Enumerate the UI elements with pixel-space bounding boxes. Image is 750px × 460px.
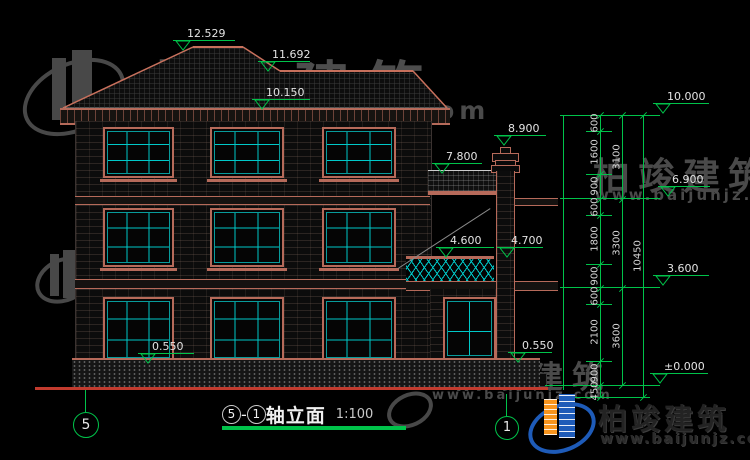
title-grid-start: 5 bbox=[222, 405, 241, 424]
elevation-marker-chimney: 8.900 bbox=[494, 122, 546, 136]
elevation-marker-sill-right: 0.550 bbox=[508, 339, 554, 353]
dim-segment: 900 bbox=[590, 176, 601, 195]
title-grid-end: 1 bbox=[247, 405, 266, 424]
elevation-marker-10000: 10.000 bbox=[653, 90, 709, 104]
grid-bubble-1: 1 bbox=[495, 416, 519, 440]
cad-elevation-drawing: 柏竣建筑 www.baijunjz.com 柏竣建筑 www.baijunjz.… bbox=[0, 0, 750, 460]
dim-segment: 1600 bbox=[590, 139, 601, 164]
dim-segment: 600 bbox=[590, 197, 601, 216]
ledge-6900 bbox=[514, 198, 558, 206]
elevation-marker-balcony: 4.600 bbox=[436, 234, 494, 248]
window-1f-right bbox=[322, 297, 396, 362]
logo-building-blue-icon bbox=[559, 394, 575, 438]
level-line bbox=[560, 287, 660, 288]
elevation-triangle-icon bbox=[438, 247, 454, 258]
dim-segment: 900 bbox=[590, 266, 601, 285]
elevation-triangle-icon bbox=[652, 373, 668, 384]
title-axis-text: 轴立面 bbox=[266, 405, 326, 427]
elevation-marker-eave: 10.150 bbox=[252, 86, 310, 100]
window-1f-center bbox=[210, 297, 284, 362]
elevation-triangle-icon bbox=[655, 103, 671, 114]
elevation-marker-ridge2: 11.692 bbox=[258, 48, 311, 62]
dim-floor-height: 3100 bbox=[612, 144, 623, 169]
elevation-triangle-icon bbox=[254, 99, 270, 110]
elevation-marker-6900: 6.900 bbox=[658, 173, 710, 187]
watermark-logo-bar bbox=[50, 254, 59, 296]
elevation-triangle-icon bbox=[660, 186, 676, 197]
elevation-triangle-icon bbox=[655, 275, 671, 286]
elevation-triangle-icon bbox=[260, 61, 276, 72]
window-2f-right bbox=[322, 208, 396, 267]
elevation-triangle-icon bbox=[496, 135, 512, 146]
grid-line-5 bbox=[85, 390, 86, 412]
dim-total-height: 10450 bbox=[633, 240, 644, 272]
elevation-triangle-icon bbox=[510, 352, 526, 363]
elevation-triangle-icon bbox=[434, 163, 450, 174]
window-2f-center bbox=[210, 208, 284, 267]
elevation-triangle-icon bbox=[499, 247, 515, 258]
window-3f-left bbox=[103, 127, 174, 178]
grid-bubble-5: 5 bbox=[73, 412, 99, 438]
level-line bbox=[560, 198, 660, 199]
dim-segment: 1800 bbox=[590, 226, 601, 251]
level-line bbox=[545, 385, 660, 386]
logo-building-orange-icon bbox=[544, 399, 557, 435]
elevation-marker-3600: 3.600 bbox=[653, 262, 709, 276]
dim-segment: 900 bbox=[590, 363, 601, 382]
window-1f-porch bbox=[443, 297, 496, 360]
elevation-marker-sill-left: 0.550 bbox=[138, 340, 194, 354]
elevation-marker-ridge: 12.529 bbox=[173, 27, 235, 41]
logo-url-text: www.baijunjz.com bbox=[600, 431, 750, 447]
level-line bbox=[560, 115, 660, 116]
elevation-marker-porch-eave: 7.800 bbox=[432, 150, 482, 164]
ground-line bbox=[35, 387, 548, 390]
drawing-title: 5-1轴立面1:100 bbox=[222, 401, 373, 428]
floor-band-2f bbox=[75, 279, 430, 289]
dim-segment: 600 bbox=[590, 286, 601, 305]
elevation-marker-balcony2: 4.700 bbox=[497, 234, 543, 248]
window-2f-left bbox=[103, 208, 174, 267]
dim-segment: 600 bbox=[590, 113, 601, 132]
elevation-marker-ground: ±0.000 bbox=[650, 360, 708, 374]
porch-fascia bbox=[428, 192, 498, 195]
watermark-url: www.baijunjz.com bbox=[432, 388, 613, 403]
elevation-triangle-icon bbox=[140, 353, 156, 364]
title-underline bbox=[222, 426, 406, 430]
elevation-triangle-icon bbox=[175, 40, 191, 51]
title-scale: 1:100 bbox=[336, 407, 373, 422]
floor-band-3f bbox=[75, 196, 430, 205]
window-3f-center bbox=[210, 127, 284, 178]
dim-segment: 2100 bbox=[590, 319, 601, 344]
ruler-extension-line bbox=[563, 115, 564, 390]
dim-floor-height: 3300 bbox=[612, 230, 623, 255]
title-separator: - bbox=[241, 405, 247, 424]
dim-floor-height: 3600 bbox=[612, 323, 623, 348]
window-3f-right bbox=[322, 127, 396, 178]
grid-line-1 bbox=[506, 394, 507, 416]
